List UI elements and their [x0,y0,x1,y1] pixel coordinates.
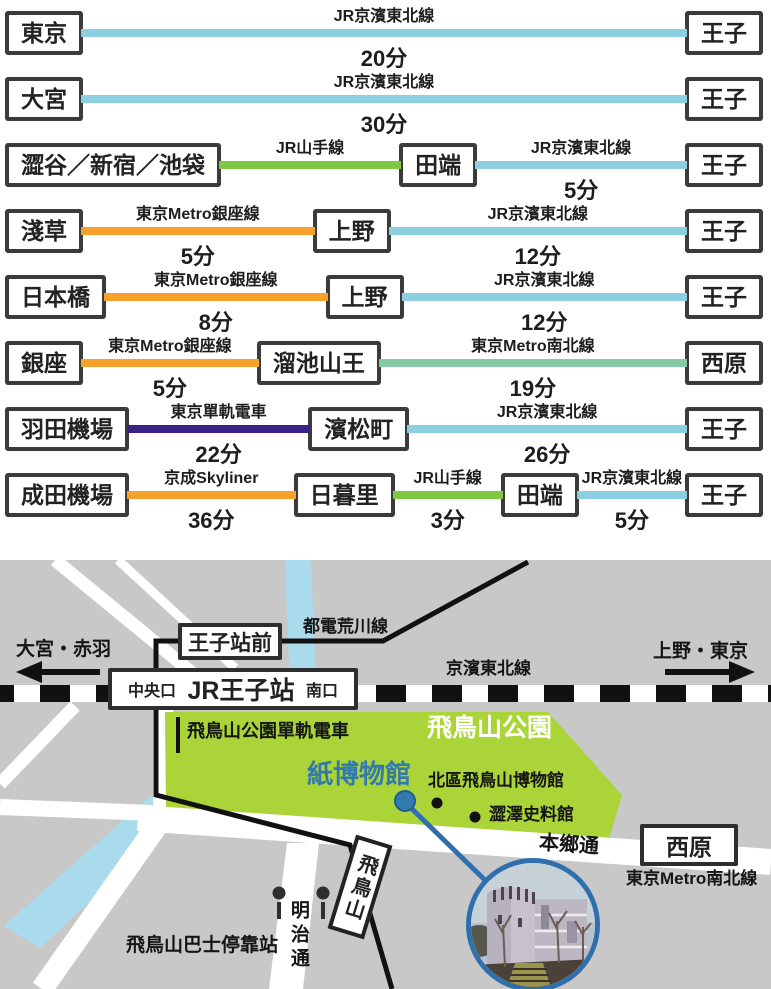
route-leg: JR山手線3分 [395,462,501,528]
route-leg: 東京Metro銀座線8分 [106,264,326,330]
line-name-label: 東京Metro銀座線 [83,200,313,224]
line-bar [127,425,310,433]
line-bar [389,227,687,235]
line-bar [407,425,687,433]
line-bar [127,491,296,499]
label-shibusawa-museum: 澀澤史料館 [489,806,574,825]
station-box: 日暮里 [294,473,395,518]
line-name-label: 東京Metro銀座線 [83,332,257,356]
label-park-monorail: 飛鳥山公園單軌電車 [187,722,349,742]
line-name-label: JR京濱東北線 [83,68,685,92]
station-box: 王子 [685,209,763,254]
route-leg: JR京濱東北線26分 [409,396,685,462]
duration-label: 5分 [579,503,685,535]
access-guide: 東京JR京濱東北線20分王子大宮JR京濱東北線30分王子澀谷／新宿／池袋JR山手… [0,0,771,989]
bus-stop-icon [273,887,286,900]
route-leg: JR京濱東北線5分 [579,462,685,528]
label-paper-museum: 紙博物館 [307,760,411,789]
station-box: 淺草 [5,209,83,254]
museum-photo-art [471,863,595,987]
line-bar [402,293,687,301]
station-box: 田端 [501,473,579,518]
route-leg: JR京濱東北線5分 [477,132,685,198]
line-name-label: JR京濱東北線 [579,464,685,488]
paper-museum-dot [395,791,415,811]
station-box: 王子 [685,143,763,188]
route-leg: JR京濱東北線12分 [404,264,685,330]
station-box: 大宮 [5,77,83,122]
label-toden-arakawa-line: 都電荒川線 [303,618,388,637]
museum-photo [466,858,600,989]
jr-oji-label: JR王子站 [188,671,295,707]
route-leg: JR京濱東北線30分 [83,66,685,132]
station-box: 東京 [5,11,83,56]
label-asukayama-park: 飛鳥山公園 [427,715,552,743]
line-bar [81,359,259,367]
route-row: 淺草東京Metro銀座線5分上野JR京濱東北線12分王子 [5,198,763,264]
route-row: 東京JR京濱東北線20分王子 [5,0,763,66]
route-leg: 東京Metro銀座線5分 [83,198,313,264]
line-name-label: 京成Skyliner [129,464,294,488]
station-box: 澀谷／新宿／池袋 [5,143,221,188]
line-bar [577,491,687,499]
line-bar [81,227,315,235]
line-bar [81,95,687,103]
line-name-label: JR山手線 [395,464,501,488]
route-row: 成田機場京成Skyliner36分日暮里JR山手線3分田端JR京濱東北線5分王子 [5,462,763,528]
area-map: 大宮・赤羽 上野・東京 都電荒川線 京濱東北線 王子站前 中央口 JR王子站 南… [0,560,771,989]
line-name-label: JR京濱東北線 [391,200,685,224]
route-leg: 東京單軌電車22分 [129,396,308,462]
station-box: 田端 [399,143,477,188]
station-box-nishigahara: 西原 [640,824,738,866]
line-name-label: JR京濱東北線 [404,266,685,290]
route-row: 羽田機場東京單軌電車22分濱松町JR京濱東北線26分王子 [5,396,763,462]
route-leg: JR京濱東北線12分 [391,198,685,264]
station-box: 濱松町 [308,407,409,452]
line-name-label: 東京Metro銀座線 [106,266,326,290]
direction-omiya-akabane: 大宮・赤羽 [16,640,111,661]
duration-label: 36分 [129,503,294,535]
line-name-label: 東京單軌電車 [129,398,308,422]
line-name-label: JR京濱東北線 [83,2,685,26]
route-leg: 東京Metro銀座線5分 [83,330,257,396]
line-name-label: 東京Metro南北線 [381,332,685,356]
station-box: 王子 [685,473,763,518]
line-bar [475,161,687,169]
label-hongo-dori: 本鄉通 [538,832,599,858]
station-box: 上野 [313,209,391,254]
station-box: 銀座 [5,341,83,386]
line-bar [81,29,687,37]
station-box: 西原 [685,341,763,386]
route-leg: 東京Metro南北線19分 [381,330,685,396]
photo-balcony [567,921,577,943]
station-box-jr-oji: 中央口 JR王子站 南口 [108,668,358,710]
route-row: 大宮JR京濱東北線30分王子 [5,66,763,132]
duration-label: 3分 [395,503,501,535]
label-kita-museum: 北區飛鳥山博物館 [428,772,564,791]
station-box: 日本橋 [5,275,106,320]
photo-balcony [541,905,549,929]
label-keihin-tohoku-line: 京濱東北線 [446,660,531,679]
route-diagram: 東京JR京濱東北線20分王子大宮JR京濱東北線30分王子澀谷／新宿／池袋JR山手… [0,0,771,528]
label-namboku-line: 東京Metro南北線 [626,870,757,889]
station-box-oji-ekimae: 王子站前 [178,623,282,660]
line-bar [393,491,503,499]
line-name-label: JR京濱東北線 [409,398,685,422]
jr-oji-inner: 中央口 JR王子站 南口 [112,671,354,707]
route-row: 日本橋東京Metro銀座線8分上野JR京濱東北線12分王子 [5,264,763,330]
line-name-label: JR山手線 [221,134,399,158]
station-box: 王子 [685,275,763,320]
route-leg: JR京濱東北線20分 [83,0,685,66]
line-bar [104,293,328,301]
route-row: 澀谷／新宿／池袋JR山手線田端JR京濱東北線5分王子 [5,132,763,198]
route-leg: JR山手線 [221,132,399,198]
route-row: 銀座東京Metro銀座線5分溜池山王東京Metro南北線19分西原 [5,330,763,396]
direction-ueno-tokyo: 上野・東京 [653,642,748,663]
line-bar [379,359,687,367]
bus-stop-icon [317,887,330,900]
road [0,807,152,813]
line-bar [219,161,401,169]
station-box: 羽田機場 [5,407,129,452]
central-exit-label: 中央口 [128,677,176,701]
shibusawa-museum-dot [470,812,481,823]
station-box: 溜池山王 [257,341,381,386]
label-bus-stop: 飛鳥山巴士停靠站 [126,936,278,957]
station-box: 上野 [326,275,404,320]
kita-museum-dot [432,798,443,809]
south-exit-label: 南口 [306,677,338,701]
station-box: 王子 [685,407,763,452]
station-box: 王子 [685,77,763,122]
line-name-label: JR京濱東北線 [477,134,685,158]
station-box: 成田機場 [5,473,129,518]
station-box: 王子 [685,11,763,56]
route-leg: 京成Skyliner36分 [129,462,294,528]
label-meiji-dori: 明治通 [287,900,308,989]
